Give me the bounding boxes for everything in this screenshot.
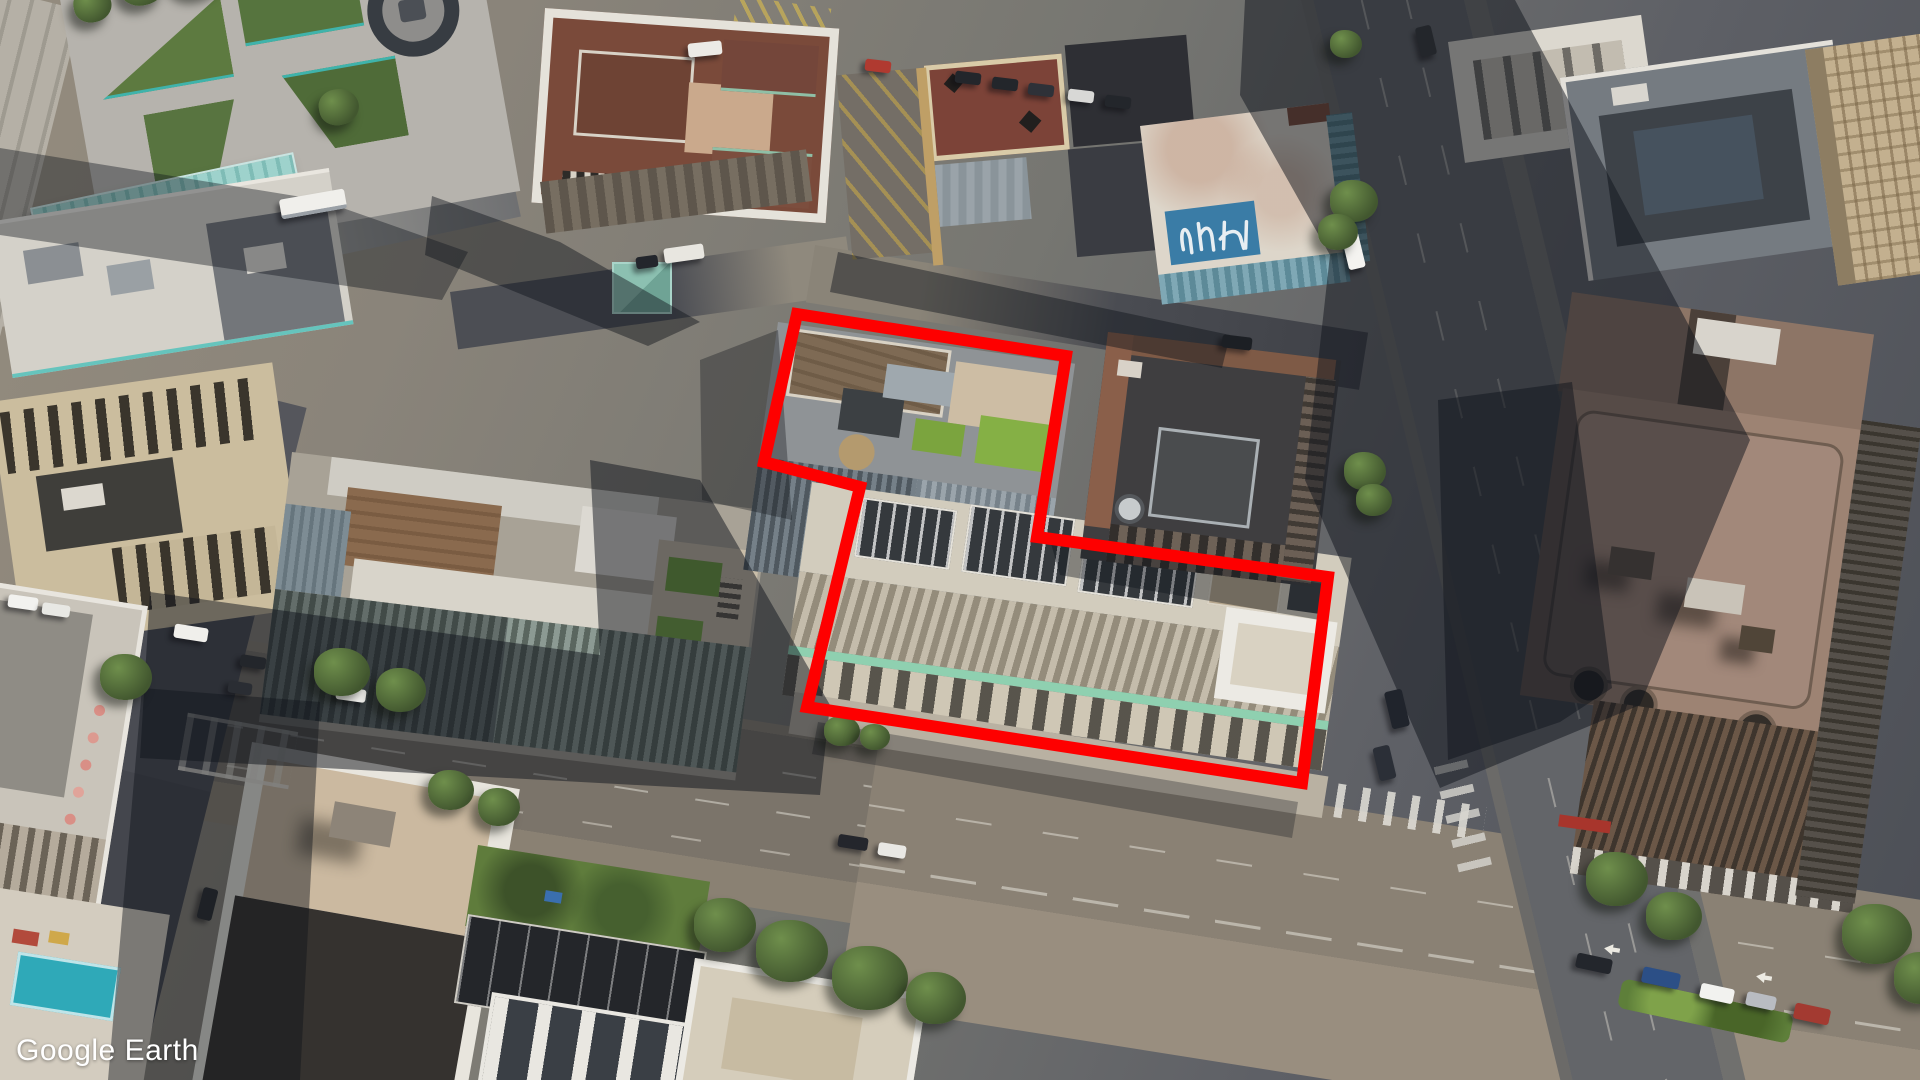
terrace-lawn <box>665 557 723 597</box>
atrium-teal-roof <box>612 262 672 314</box>
pool-deck-red <box>12 929 40 947</box>
tree <box>1330 30 1362 58</box>
roof-inner-frame <box>1148 427 1260 529</box>
umbrella-pink <box>93 704 106 717</box>
building-red-roof <box>924 54 1070 162</box>
pool-deck-yellow <box>48 930 70 945</box>
lowrise-penthouse <box>1214 607 1338 714</box>
roof-corner-unit <box>1117 360 1143 379</box>
google-earth-watermark: Google Earth <box>16 1034 199 1068</box>
penthouse-inner <box>1230 623 1320 696</box>
tree <box>1318 214 1358 250</box>
rooftop-section-dark <box>206 205 345 341</box>
rooftop-unit <box>23 242 84 284</box>
rooftop-courtyard <box>684 82 774 158</box>
tower-lawn <box>912 418 966 457</box>
tree <box>314 648 370 696</box>
building-brown-midrise <box>1080 332 1341 587</box>
map-canvas[interactable]: Google Earth <box>0 0 1920 1080</box>
blue-tarp <box>544 890 563 904</box>
tree <box>478 788 520 826</box>
facade-east-grid <box>1281 376 1336 583</box>
roof-metal-gray <box>935 157 1032 227</box>
umbrella-pink <box>64 813 77 826</box>
tree <box>116 0 168 9</box>
tree <box>71 0 114 25</box>
rooftop-section <box>721 40 819 98</box>
umbrella-pink <box>72 786 85 799</box>
roof-fan-vent <box>1113 492 1146 525</box>
tree <box>906 972 966 1024</box>
roof-inner-gray <box>0 599 93 797</box>
rooftop-sign-blue <box>1165 201 1261 266</box>
rooftop-unit <box>1738 625 1775 653</box>
car <box>1372 744 1396 781</box>
building-glass-complex <box>259 452 769 780</box>
tree <box>100 654 152 700</box>
roof-blue-tint <box>1633 115 1764 216</box>
tree <box>1586 852 1648 906</box>
rooftop-sign-glyphs <box>1165 201 1261 266</box>
rooftop-section <box>573 49 695 143</box>
rooftop-unit <box>106 259 154 296</box>
tree <box>428 770 474 810</box>
umbrella-pink <box>87 732 100 745</box>
tree <box>1646 892 1702 940</box>
tree <box>1356 484 1392 516</box>
tree <box>376 668 426 712</box>
rooftop-court-dark <box>36 457 183 551</box>
tree <box>756 920 828 982</box>
glass-tower-top <box>275 504 351 597</box>
roof-notch <box>1019 110 1042 133</box>
tree <box>694 898 756 952</box>
tree <box>832 946 908 1010</box>
terrace-furniture <box>716 577 743 619</box>
tree <box>824 716 860 746</box>
building-bronze-tower <box>1520 388 1872 738</box>
tree <box>1842 904 1912 964</box>
park-garden-bed <box>232 0 364 46</box>
tree <box>860 724 890 750</box>
car <box>196 887 218 922</box>
facade-window-stripes <box>0 377 261 474</box>
roof-inner-beige <box>721 997 863 1080</box>
car <box>1384 688 1410 729</box>
rooftop-pool <box>10 952 121 1022</box>
rooftop-unit <box>1611 83 1649 106</box>
rooftop-unit <box>1608 546 1655 580</box>
rooftop-lantern <box>961 504 1075 586</box>
umbrella-pink <box>80 759 93 772</box>
park-garden-bed <box>89 0 234 100</box>
